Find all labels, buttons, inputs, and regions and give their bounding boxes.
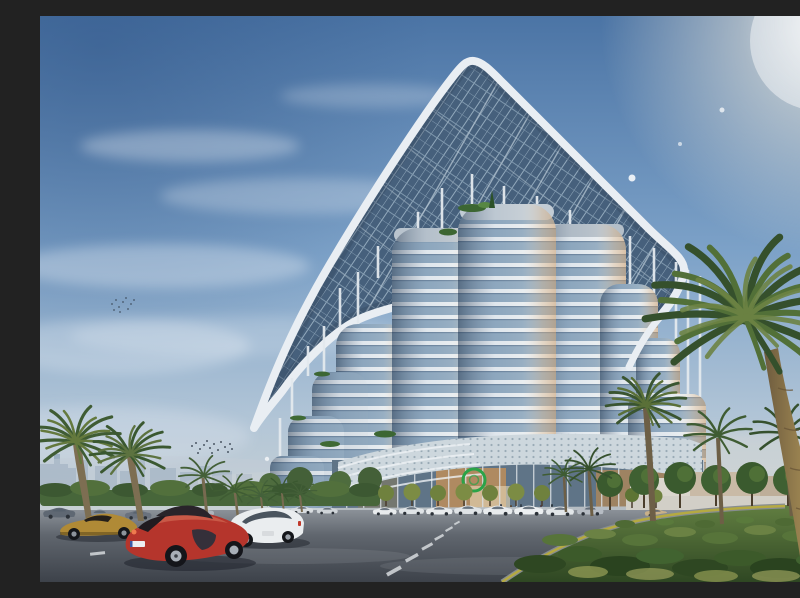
scene-architectural-rendering: Photorealistic rendering of a futuristic… xyxy=(40,16,800,582)
